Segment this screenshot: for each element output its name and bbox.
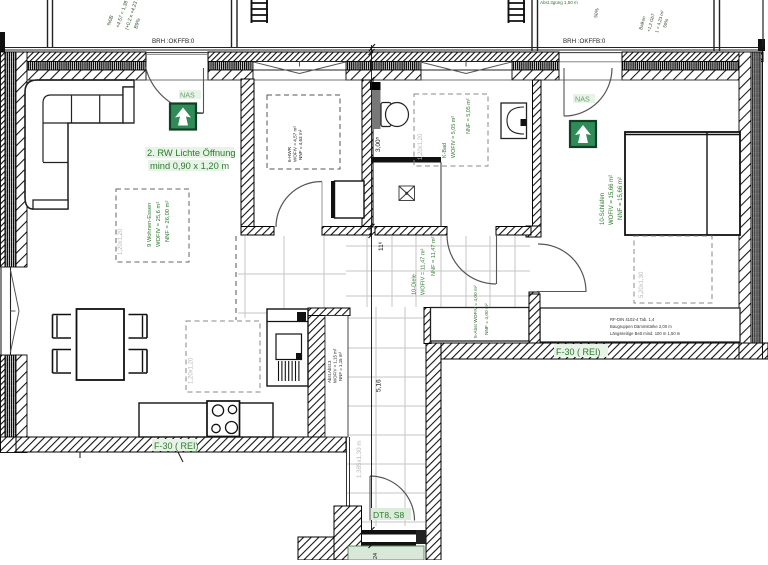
svg-text:WOFIV = 25,6 m²: WOFIV = 25,6 m² xyxy=(156,202,162,247)
svg-text:F-30 ( REI): F-30 ( REI) xyxy=(556,347,601,357)
svg-text:F-30 ( REI): F-30 ( REI) xyxy=(154,441,199,451)
svg-text:NNF = 11,47 m²: NNF = 11,47 m² xyxy=(431,236,437,276)
svg-text:WOFIV = 4,57 m²: WOFIV = 4,57 m² xyxy=(293,126,298,162)
svg-text:Abst.Abst.3: Abst.Abst.3 xyxy=(327,360,332,383)
svg-text:1,20x1,20: 1,20x1,20 xyxy=(189,357,195,384)
svg-text:3,00⁵: 3,00⁵ xyxy=(375,136,382,152)
svg-text:WOFIV = 15,66 m²: WOFIV = 15,66 m² xyxy=(609,175,615,225)
svg-text:1,385x1,30 m: 1,385x1,30 m xyxy=(356,441,363,479)
svg-text:1,20x1,20: 1,20x1,20 xyxy=(418,133,424,160)
svg-text:1,20x1,20: 1,20x1,20 xyxy=(118,228,124,255)
svg-text:NNF = 4,00 m²: NNF = 4,00 m² xyxy=(484,303,490,335)
svg-text:BRH :OKFFB:0: BRH :OKFFB:0 xyxy=(152,38,195,45)
svg-text:NNF = 5,05 m²: NNF = 5,05 m² xyxy=(466,98,472,134)
svg-text:5,20x1,30: 5,20x1,30 xyxy=(639,271,645,298)
svg-text:24: 24 xyxy=(373,553,379,559)
svg-text:Abst.3güng 1,50 m: Abst.3güng 1,50 m xyxy=(540,0,578,5)
svg-text:NNF = 26,00 m²: NNF = 26,00 m² xyxy=(165,201,171,242)
svg-text:9 Wohnen-Essen: 9 Wohnen-Essen xyxy=(147,203,153,247)
svg-text:BRH :OKFFB:0: BRH :OKFFB:0 xyxy=(563,38,606,45)
svg-text:5,16: 5,16 xyxy=(376,379,383,392)
svg-text:WOFIV = 1,15 m²: WOFIV = 1,15 m² xyxy=(333,348,338,383)
svg-text:6-HWR: 6-HWR xyxy=(287,146,292,162)
svg-text:Baugruppen Dämmstärke 2,00 m: Baugruppen Dämmstärke 2,00 m xyxy=(610,324,672,329)
svg-text:11⁶: 11⁶ xyxy=(378,241,385,251)
svg-text:10-Schlafen: 10-Schlafen xyxy=(600,193,606,225)
svg-text:NAS: NAS xyxy=(575,95,590,104)
svg-text:NNF = 15,66 m²: NNF = 15,66 m² xyxy=(618,177,624,220)
svg-text:mind 0,90 x 1,20 m: mind 0,90 x 1,20 m xyxy=(150,161,229,171)
svg-text:NAS: NAS xyxy=(180,91,195,100)
svg-text:RF-DIN 4102-4 Tab. 1,4: RF-DIN 4102-4 Tab. 1,4 xyxy=(610,317,655,322)
svg-text:WOFIV = 11,47 m²: WOFIV = 11,47 m² xyxy=(421,248,427,295)
svg-text:NNF = 1,15 m²: NNF = 1,15 m² xyxy=(338,352,343,381)
svg-text:2. RW Lichte Öffnung: 2. RW Lichte Öffnung xyxy=(147,148,236,158)
svg-text:WOFIV = 5,05 m²: WOFIV = 5,05 m² xyxy=(451,116,457,158)
svg-text:5-Abst WOFIV = 4,00 m²: 5-Abst WOFIV = 4,00 m² xyxy=(473,285,479,338)
svg-text:NNF = 4,63 m²: NNF = 4,63 m² xyxy=(298,129,303,160)
svg-text:DT8, S8: DT8, S8 xyxy=(373,510,404,520)
svg-text:K-Bad: K-Bad xyxy=(442,143,448,158)
svg-text:10-Diele: 10-Diele xyxy=(412,274,418,295)
svg-text:Längsseitige Bett mind. 100 m: Längsseitige Bett mind. 100 m 1,50 m xyxy=(610,331,681,336)
